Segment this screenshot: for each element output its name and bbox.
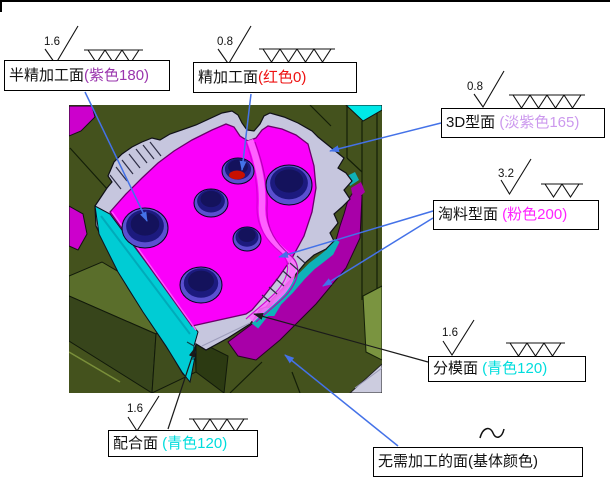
grade-marks-parting-surface [506, 343, 565, 356]
label-text: 分模面 [433, 360, 482, 377]
label-text: 淘料型面 [438, 206, 502, 223]
label-no-machining-surface: 无需加工的面(基体颜色) [373, 447, 583, 477]
label-text: 配合面 [113, 435, 162, 452]
label-semi-finish-surface: 半精加工面(紫色180) [4, 60, 170, 91]
label-parting-surface: 分模面 (青色120) [428, 356, 586, 382]
machining-color-legend-diagram: 1.6 0.8 0.8 3.2 1.6 1.6 半精加工面(紫色180) [0, 0, 610, 501]
grade-marks-finish [259, 49, 335, 62]
roughness-value-scrap-surface: 3.2 [498, 168, 514, 180]
roughness-value-parting-surface: 1.6 [442, 327, 458, 339]
label-color-code: (淡紫色165) [499, 114, 579, 131]
grade-marks-3d-surface [509, 95, 585, 108]
roughness-value-3d-surface: 0.8 [467, 81, 483, 93]
label-fit-surface: 配合面 (青色120) [108, 430, 258, 457]
label-color-code: (红色0) [258, 69, 306, 86]
label-finish-surface: 精加工面(红色0) [193, 62, 357, 93]
label-color-code: (青色120) [162, 435, 227, 452]
label-color-code: (紫色180) [84, 67, 149, 84]
label-3d-surface: 3D型面 (淡紫色165) [441, 108, 605, 138]
roughness-value-finish: 0.8 [217, 36, 233, 48]
label-scrap-surface: 淘料型面 (粉色200) [433, 200, 599, 230]
roughness-value-semi-finish: 1.6 [44, 36, 60, 48]
cad-model-image [69, 105, 382, 393]
roughness-value-fit-surface: 1.6 [127, 403, 143, 415]
label-text: 半精加工面 [9, 67, 84, 84]
label-text: 3D型面 [446, 114, 499, 131]
label-color-code: (青色120) [482, 360, 547, 377]
as-cast-tilde-icon [480, 429, 504, 438]
grade-marks-scrap-surface [541, 184, 583, 197]
finish-red-spot [229, 171, 245, 180]
label-text: 无需加工的面(基体颜色) [378, 453, 538, 470]
label-color-code: (粉色200) [502, 206, 567, 223]
label-text: 精加工面 [198, 69, 258, 86]
